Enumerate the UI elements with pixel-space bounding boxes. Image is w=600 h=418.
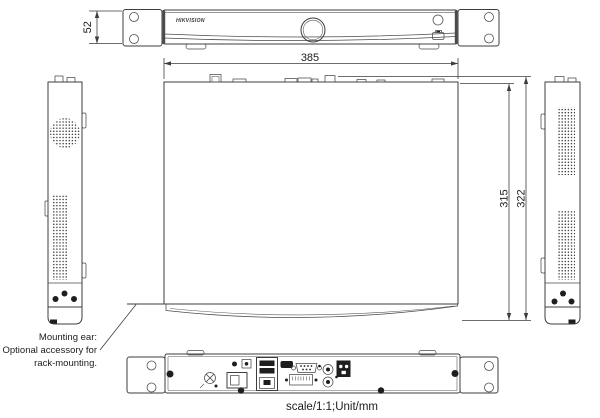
dimension-depth-chassis: 315 — [460, 84, 514, 321]
rack-hole — [130, 13, 139, 22]
small-socket — [242, 360, 251, 369]
indicator-dot — [232, 362, 237, 367]
side-tab — [82, 263, 86, 278]
note-line-1: Mounting ear: — [39, 332, 97, 343]
nvr-dimension-drawing: 52 HIKVISION — [0, 0, 600, 418]
front-bezel-curve-upper — [164, 33, 456, 37]
rack-hole — [130, 35, 139, 44]
panel-screw — [378, 387, 384, 393]
vga-port — [292, 364, 322, 373]
vent-strip — [52, 194, 67, 280]
side-cap-left — [163, 11, 166, 44]
note-line-3: rack-mounting. — [34, 358, 97, 369]
ground-screw-icon — [200, 373, 218, 389]
mounting-ear-front-right — [458, 10, 499, 47]
arrowhead-right — [451, 61, 458, 65]
scale-caption: scale/1:1;Unit/mm — [286, 401, 378, 413]
hdmi-port — [281, 361, 294, 368]
top-bump — [55, 76, 63, 82]
arrowhead-down — [524, 313, 528, 320]
side-cap-right — [455, 11, 458, 44]
panel-screw — [452, 370, 459, 377]
vent-strip — [557, 211, 575, 280]
note-line-2: Optional accessory for — [2, 345, 97, 356]
front-bezel-top-view — [127, 304, 458, 318]
arrowhead-down — [507, 313, 511, 320]
ir-window — [301, 18, 325, 42]
rack-hole — [485, 34, 494, 43]
bottom-screws-right-side — [552, 291, 575, 305]
rubber-foot — [419, 44, 439, 49]
front-view: 52 HIKVISION — [82, 10, 499, 50]
bottom-screws-left-side — [53, 291, 78, 303]
dimension-width: 385 — [164, 52, 458, 79]
bezel-mark — [569, 320, 576, 324]
side-tab — [541, 258, 545, 273]
dim-label-322: 322 — [516, 189, 528, 207]
fan-vent-circular — [50, 118, 80, 148]
rear-view — [127, 351, 498, 394]
bezel-mark — [50, 320, 57, 324]
top-view: 385 315 — [127, 52, 531, 321]
mounting-ear-rear-right — [460, 357, 498, 393]
rack-hole — [147, 361, 156, 370]
dimension-front-height: 52 — [82, 11, 122, 44]
vent-strip — [557, 107, 575, 175]
rubber-foot — [186, 44, 206, 49]
top-bump — [555, 77, 564, 83]
dim-label-52: 52 — [82, 21, 94, 33]
mounting-ear-note: Mounting ear: Optional accessory for rac… — [2, 305, 136, 370]
rear-panel-body — [165, 354, 460, 393]
usb-port — [260, 368, 275, 374]
usb-port-icon — [433, 31, 445, 40]
technical-drawing-page: 52 HIKVISION — [0, 0, 600, 418]
dim-label-315: 315 — [499, 189, 511, 207]
rack-hole — [485, 383, 494, 392]
top-bump — [568, 78, 576, 82]
right-side-view — [541, 77, 580, 325]
panel-screw — [167, 371, 174, 378]
arrowhead-up — [524, 77, 528, 84]
front-indicator-circle — [433, 15, 443, 25]
rack-hole — [485, 13, 494, 22]
arrowhead-up — [507, 84, 511, 91]
mounting-ear-front-left — [123, 10, 162, 47]
top-bump — [67, 78, 75, 83]
usb-port — [260, 361, 275, 367]
mounting-ear-rear-left — [127, 357, 165, 393]
rear-panel-inset — [168, 357, 457, 391]
terminal-block — [285, 375, 318, 386]
leader-line — [100, 305, 136, 351]
arrowhead-down — [95, 37, 99, 44]
hikvision-logo: HIKVISION — [176, 18, 205, 24]
power-switch — [227, 373, 247, 389]
top-cover — [164, 82, 458, 304]
power-inlet — [337, 361, 351, 378]
rear-connector-bumps — [210, 75, 444, 83]
dim-label-385: 385 — [301, 52, 319, 64]
side-tab — [541, 114, 545, 129]
arrowhead-up — [95, 11, 99, 18]
side-tab — [82, 113, 86, 128]
usb-ethernet-stack — [257, 358, 278, 391]
rack-hole — [485, 362, 494, 371]
left-side-view — [45, 76, 86, 324]
front-panel-body: HIKVISION — [162, 10, 458, 49]
arrowhead-left — [164, 61, 171, 65]
rack-hole — [147, 383, 156, 392]
